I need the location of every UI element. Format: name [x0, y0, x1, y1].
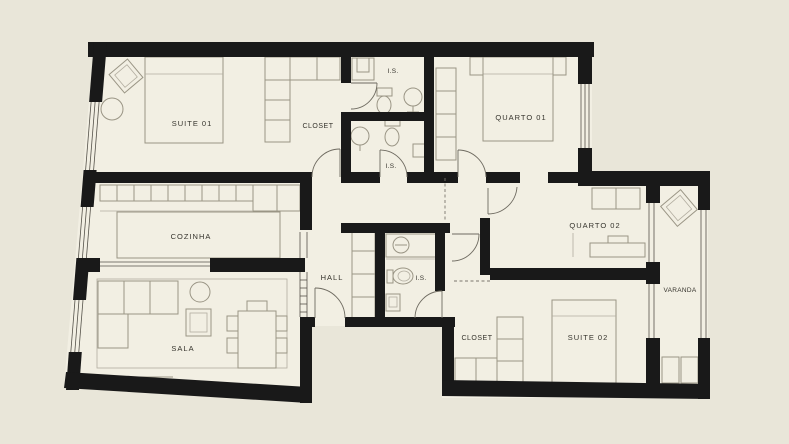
- room-label-is-hall: I.S.: [416, 275, 427, 282]
- room-label-suite-02: SUITE 02: [568, 333, 609, 342]
- room-label-quarto-01: QUARTO 01: [495, 113, 546, 122]
- floor-plan-drawing: SUITE 01 CLOSET I.S. QUARTO 01 I.S. COZI…: [0, 0, 789, 444]
- room-label-is-mid: I.S.: [386, 163, 397, 170]
- room-label-suite-01: SUITE 01: [172, 119, 213, 128]
- room-label-quarto-02: QUARTO 02: [569, 221, 620, 230]
- room-label-cozinha: COZINHA: [171, 232, 212, 241]
- room-label-closet-top: CLOSET: [302, 123, 333, 130]
- room-label-varanda: VARANDA: [663, 287, 696, 294]
- room-label-hall: HALL: [321, 273, 344, 282]
- room-label-sala: SALA: [171, 344, 194, 353]
- room-label-is-top: I.S.: [388, 68, 399, 75]
- floor-plan-page: SUITE 01 CLOSET I.S. QUARTO 01 I.S. COZI…: [0, 0, 789, 444]
- room-label-closet-bottom: CLOSET: [461, 335, 492, 342]
